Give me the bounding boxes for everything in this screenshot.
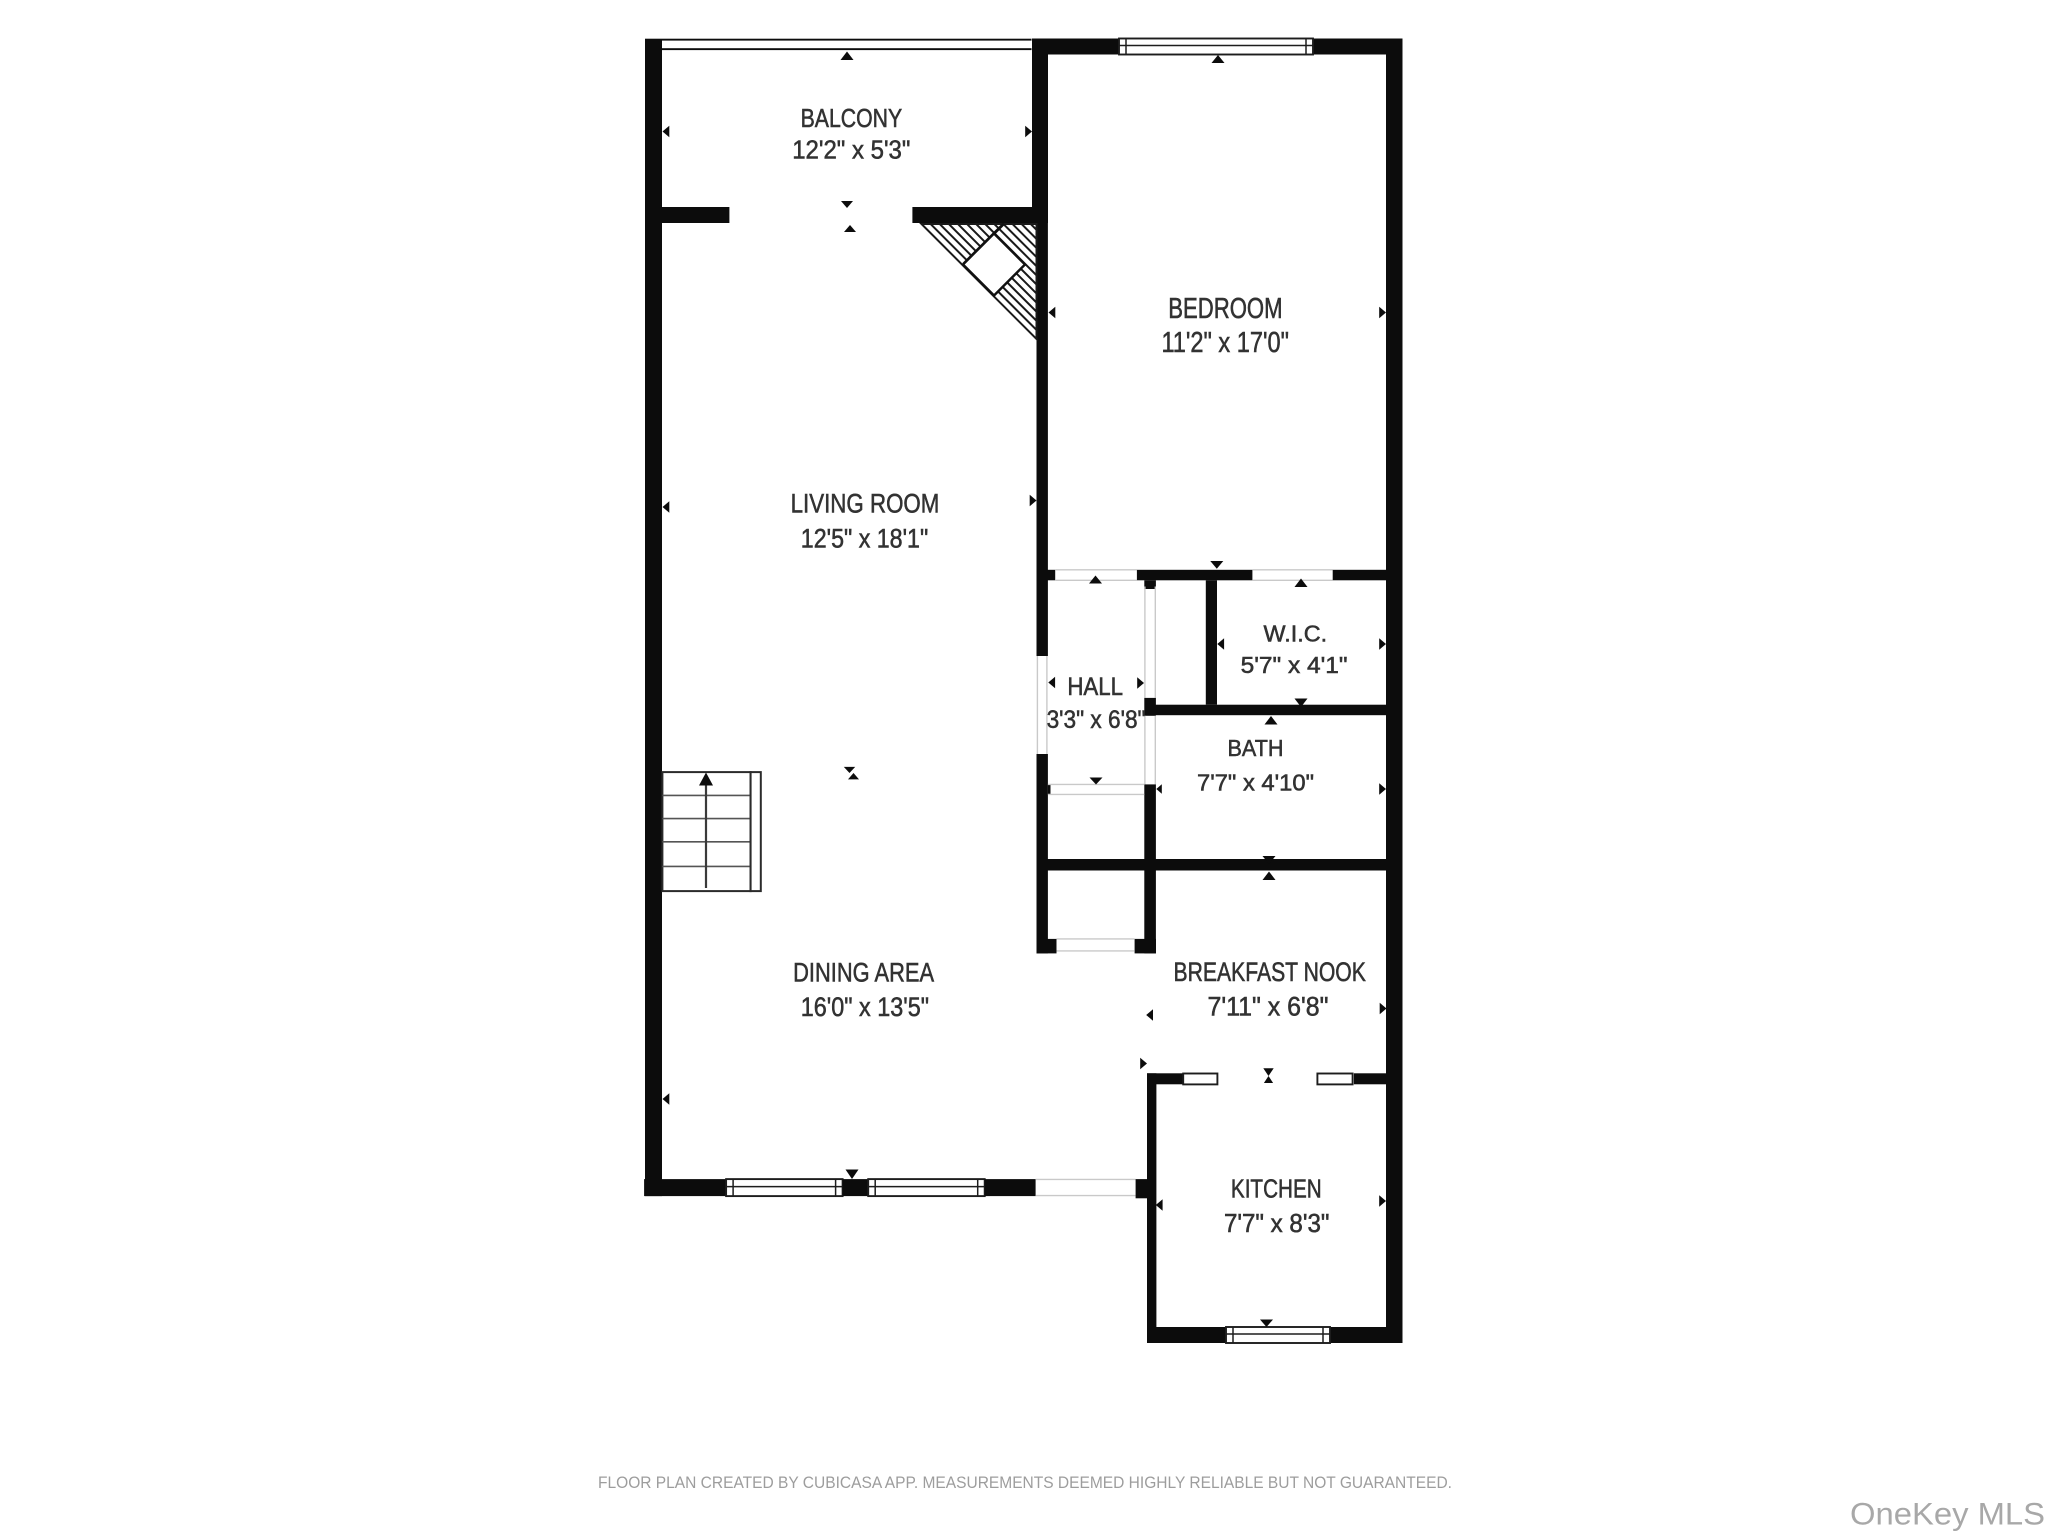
svg-text:12'5" x 18'1": 12'5" x 18'1" (801, 523, 928, 553)
svg-text:16'0" x 13'5": 16'0" x 13'5" (801, 992, 929, 1022)
svg-text:7'7" x 4'10": 7'7" x 4'10" (1197, 770, 1314, 796)
svg-text:FLOOR PLAN CREATED BY CUBICASA: FLOOR PLAN CREATED BY CUBICASA APP. MEAS… (598, 1474, 1452, 1492)
svg-text:HALL: HALL (1067, 673, 1123, 701)
svg-text:KITCHEN: KITCHEN (1231, 1176, 1322, 1204)
svg-text:BALCONY: BALCONY (801, 103, 903, 133)
svg-text:DINING AREA: DINING AREA (793, 958, 934, 988)
svg-text:3'3" x 6'8": 3'3" x 6'8" (1047, 706, 1146, 734)
svg-text:W.I.C.: W.I.C. (1264, 621, 1328, 647)
svg-text:BATH: BATH (1228, 735, 1284, 761)
svg-text:12'2" x 5'3": 12'2" x 5'3" (792, 134, 910, 164)
svg-text:7'11" x 6'8": 7'11" x 6'8" (1208, 992, 1329, 1022)
svg-text:7'7" x 8'3": 7'7" x 8'3" (1224, 1210, 1330, 1238)
svg-text:BREAKFAST NOOK: BREAKFAST NOOK (1174, 957, 1367, 987)
svg-text:5'7" x 4'1": 5'7" x 4'1" (1241, 652, 1348, 678)
svg-text:OneKey MLS: OneKey MLS (1850, 1496, 2045, 1532)
svg-text:LIVING ROOM: LIVING ROOM (791, 489, 940, 519)
svg-text:BEDROOM: BEDROOM (1168, 293, 1282, 325)
svg-text:11'2" x 17'0": 11'2" x 17'0" (1161, 327, 1289, 359)
